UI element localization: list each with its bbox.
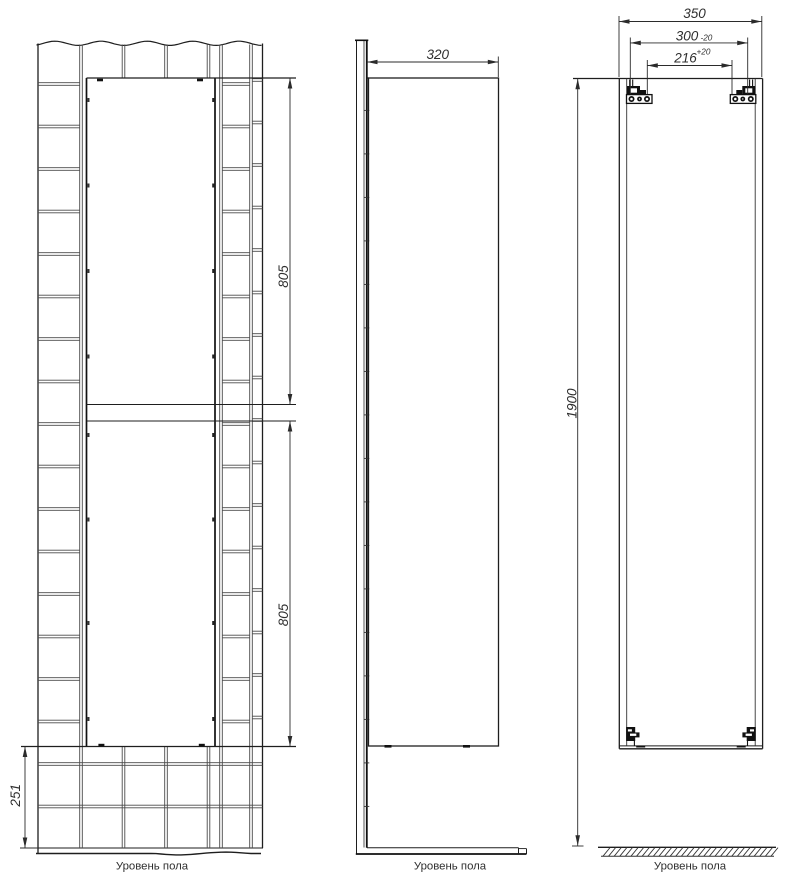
svg-text:350: 350: [683, 6, 706, 21]
svg-text:300: 300: [676, 29, 699, 44]
svg-text:+20: +20: [697, 48, 711, 57]
svg-text:805: 805: [276, 265, 291, 288]
svg-text:805: 805: [276, 603, 291, 626]
svg-text:1900: 1900: [564, 388, 579, 419]
svg-text:Уровень пола: Уровень пола: [414, 861, 487, 873]
svg-text:320: 320: [427, 47, 450, 62]
svg-text:216: 216: [673, 50, 697, 65]
svg-text:Уровень пола: Уровень пола: [116, 861, 189, 873]
svg-text:Уровень пола: Уровень пола: [654, 861, 727, 873]
svg-text:251: 251: [8, 784, 23, 808]
svg-text:-20: -20: [701, 34, 713, 43]
